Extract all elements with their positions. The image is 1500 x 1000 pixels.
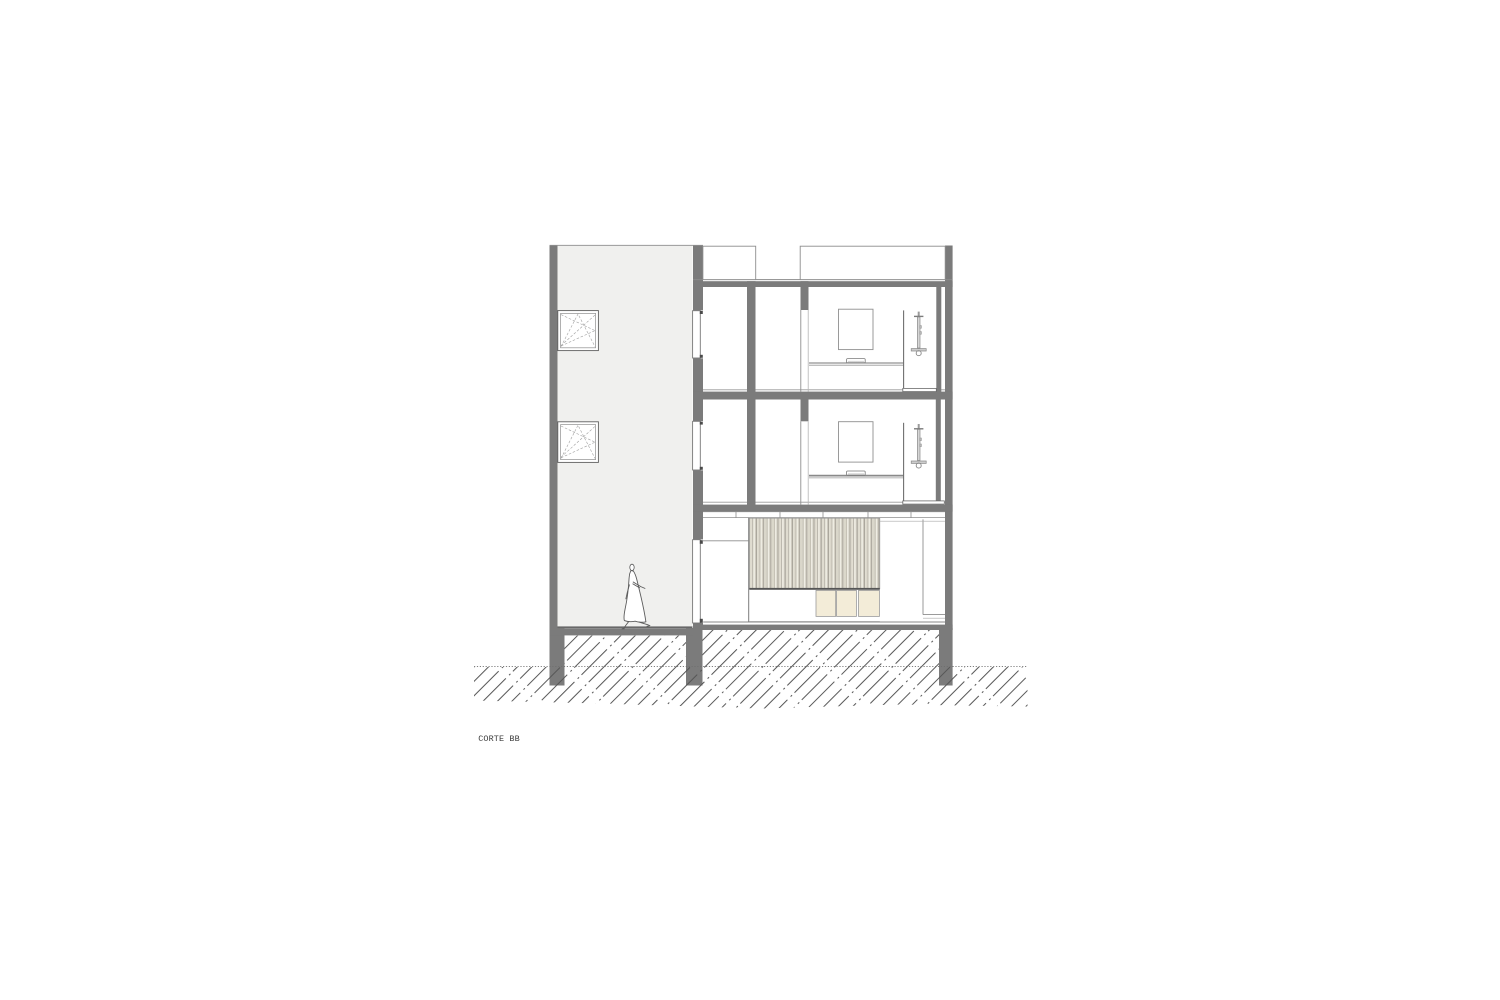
svg-text:CORTE BB: CORTE BB [478,734,520,744]
